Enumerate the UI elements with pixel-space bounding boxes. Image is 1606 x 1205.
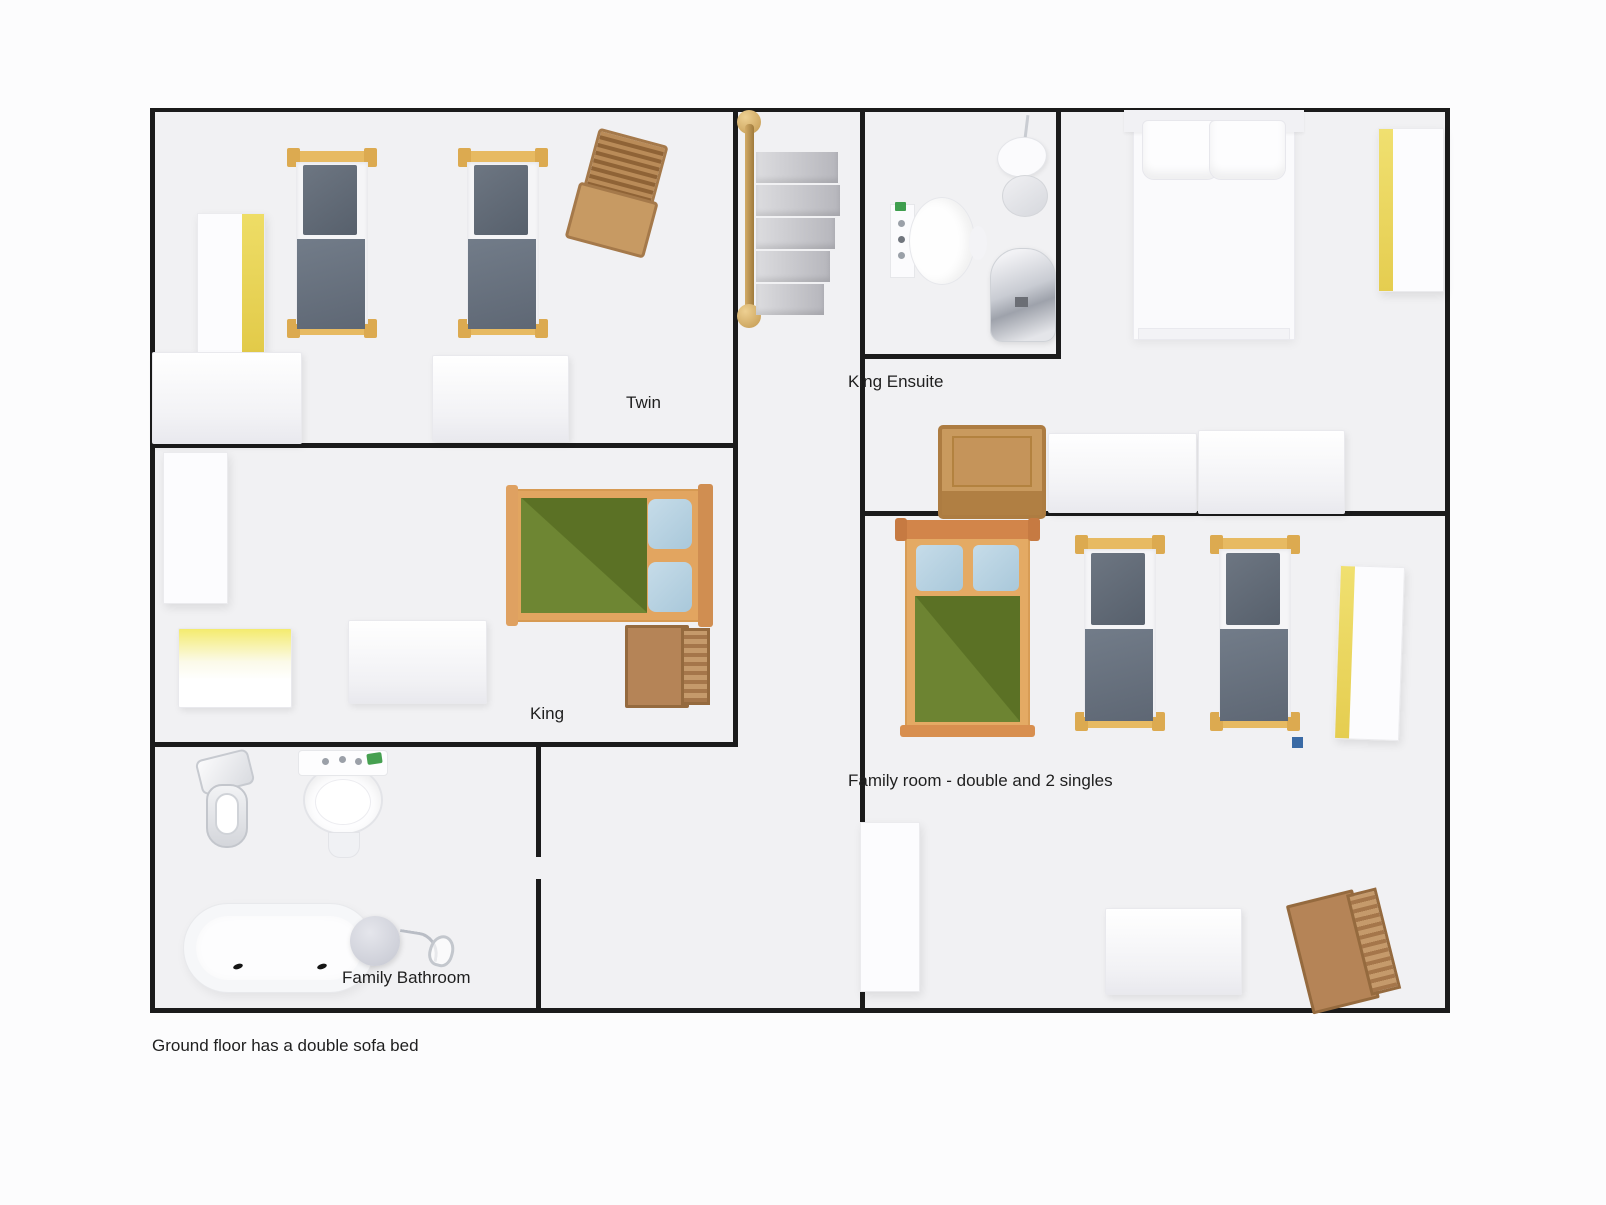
pillow-icon: [1091, 553, 1145, 626]
drawer-icon: [756, 251, 830, 282]
landing-storage-unit: [736, 100, 846, 340]
king-room-dresser-yellow: [178, 628, 292, 708]
king-room-folded-chair: [625, 625, 710, 708]
king-ensuite-chair: [938, 425, 1046, 519]
headboard-icon: [698, 484, 713, 627]
wall-bathroom-right-lower: [536, 879, 541, 1009]
toilet-controls-icon: [898, 220, 905, 227]
headboard-icon: [897, 520, 1038, 539]
family-room-bed-1: [1075, 535, 1165, 731]
twin-room-wardrobe: [197, 213, 265, 354]
king-room-wardrobe: [163, 452, 228, 604]
wall-ensuite-bath-right: [1056, 108, 1061, 359]
family-bathroom-stool: [350, 916, 400, 966]
king-ensuite-dresser-2: [1198, 430, 1345, 514]
pillow-icon: [1142, 120, 1219, 180]
wall-outer-right: [1445, 108, 1450, 1013]
pillow-icon: [916, 545, 962, 591]
family-bathroom-shower-mixer: [398, 925, 456, 967]
basin-pedestal-icon: [328, 832, 361, 858]
king-ensuite-dresser-1: [1048, 433, 1197, 513]
twin-room-bed-1: [287, 148, 377, 338]
king-room-dresser: [348, 620, 487, 704]
king-room-bed: [508, 489, 711, 622]
family-room-dresser: [1105, 908, 1242, 995]
pillow-icon: [648, 499, 692, 549]
wall-king-bottom: [150, 742, 738, 747]
family-bathroom-toilet: [196, 752, 254, 852]
duvet-icon: [521, 498, 647, 613]
family-room-double-bed: [905, 522, 1030, 735]
brass-rail-icon: [745, 124, 754, 316]
king-ensuite-toilet: [890, 196, 990, 288]
duvet-icon: [1085, 629, 1153, 721]
footnote-text: Ground floor has a double sofa bed: [152, 1036, 419, 1056]
family-bathroom-basin: [298, 750, 388, 858]
wall-outer-left: [150, 108, 155, 1013]
wall-outer-bottom: [150, 1008, 1450, 1013]
duvet-icon: [915, 596, 1020, 722]
wall-ensuite-bath-bottom: [860, 354, 1061, 359]
king-ensuite-wardrobe: [1378, 128, 1444, 292]
duvet-icon: [1220, 629, 1288, 721]
pillow-icon: [973, 545, 1019, 591]
family-room-wardrobe-1: [1334, 565, 1405, 741]
king-ensuite-sink: [993, 115, 1051, 243]
king-ensuite-bed: [1133, 110, 1295, 340]
wall-bathroom-right-upper: [536, 742, 541, 857]
king-ensuite-bidet: [990, 248, 1056, 342]
pillow-icon: [474, 165, 528, 235]
pillow-icon: [303, 165, 357, 235]
chair-rail-icon: [681, 628, 710, 704]
king-ensuite-label: King Ensuite: [848, 372, 943, 392]
duvet-icon: [468, 239, 536, 328]
family-room-bed-2: [1210, 535, 1300, 731]
family-room-wardrobe-2: [860, 822, 920, 992]
twin-room-dresser-1: [152, 352, 302, 444]
chair-seat-icon: [625, 625, 689, 708]
toilet-bowl-icon: [909, 197, 975, 285]
sink-base-icon: [1002, 175, 1048, 217]
twin-room-bed-2: [458, 148, 548, 338]
drawer-icon: [756, 152, 838, 183]
family-room-marker: [1292, 737, 1303, 748]
twin-room-label: Twin: [626, 393, 661, 413]
king-room-label: King: [530, 704, 564, 724]
basin-taps-icon: [322, 758, 329, 765]
drawer-icon: [756, 284, 824, 315]
twin-room-dresser-2: [432, 355, 569, 442]
footboard-icon: [506, 485, 518, 626]
floor-plan: Twin King Family Bathroom: [0, 0, 1606, 1205]
pillow-icon: [648, 562, 692, 612]
drawer-icon: [756, 218, 835, 249]
soap-icon: [366, 752, 382, 765]
family-bathroom-label: Family Bathroom: [342, 968, 470, 988]
pillow-icon: [1226, 553, 1280, 626]
pillow-icon: [1209, 120, 1286, 180]
toilet-button-icon: [895, 202, 906, 211]
toilet-bowl-icon: [206, 784, 248, 848]
drawer-icon: [756, 185, 840, 216]
sink-basin-icon: [994, 133, 1050, 181]
footboard-icon: [900, 725, 1035, 737]
footboard-icon: [1138, 328, 1290, 340]
family-room-label: Family room - double and 2 singles: [848, 771, 1113, 791]
duvet-icon: [297, 239, 365, 328]
